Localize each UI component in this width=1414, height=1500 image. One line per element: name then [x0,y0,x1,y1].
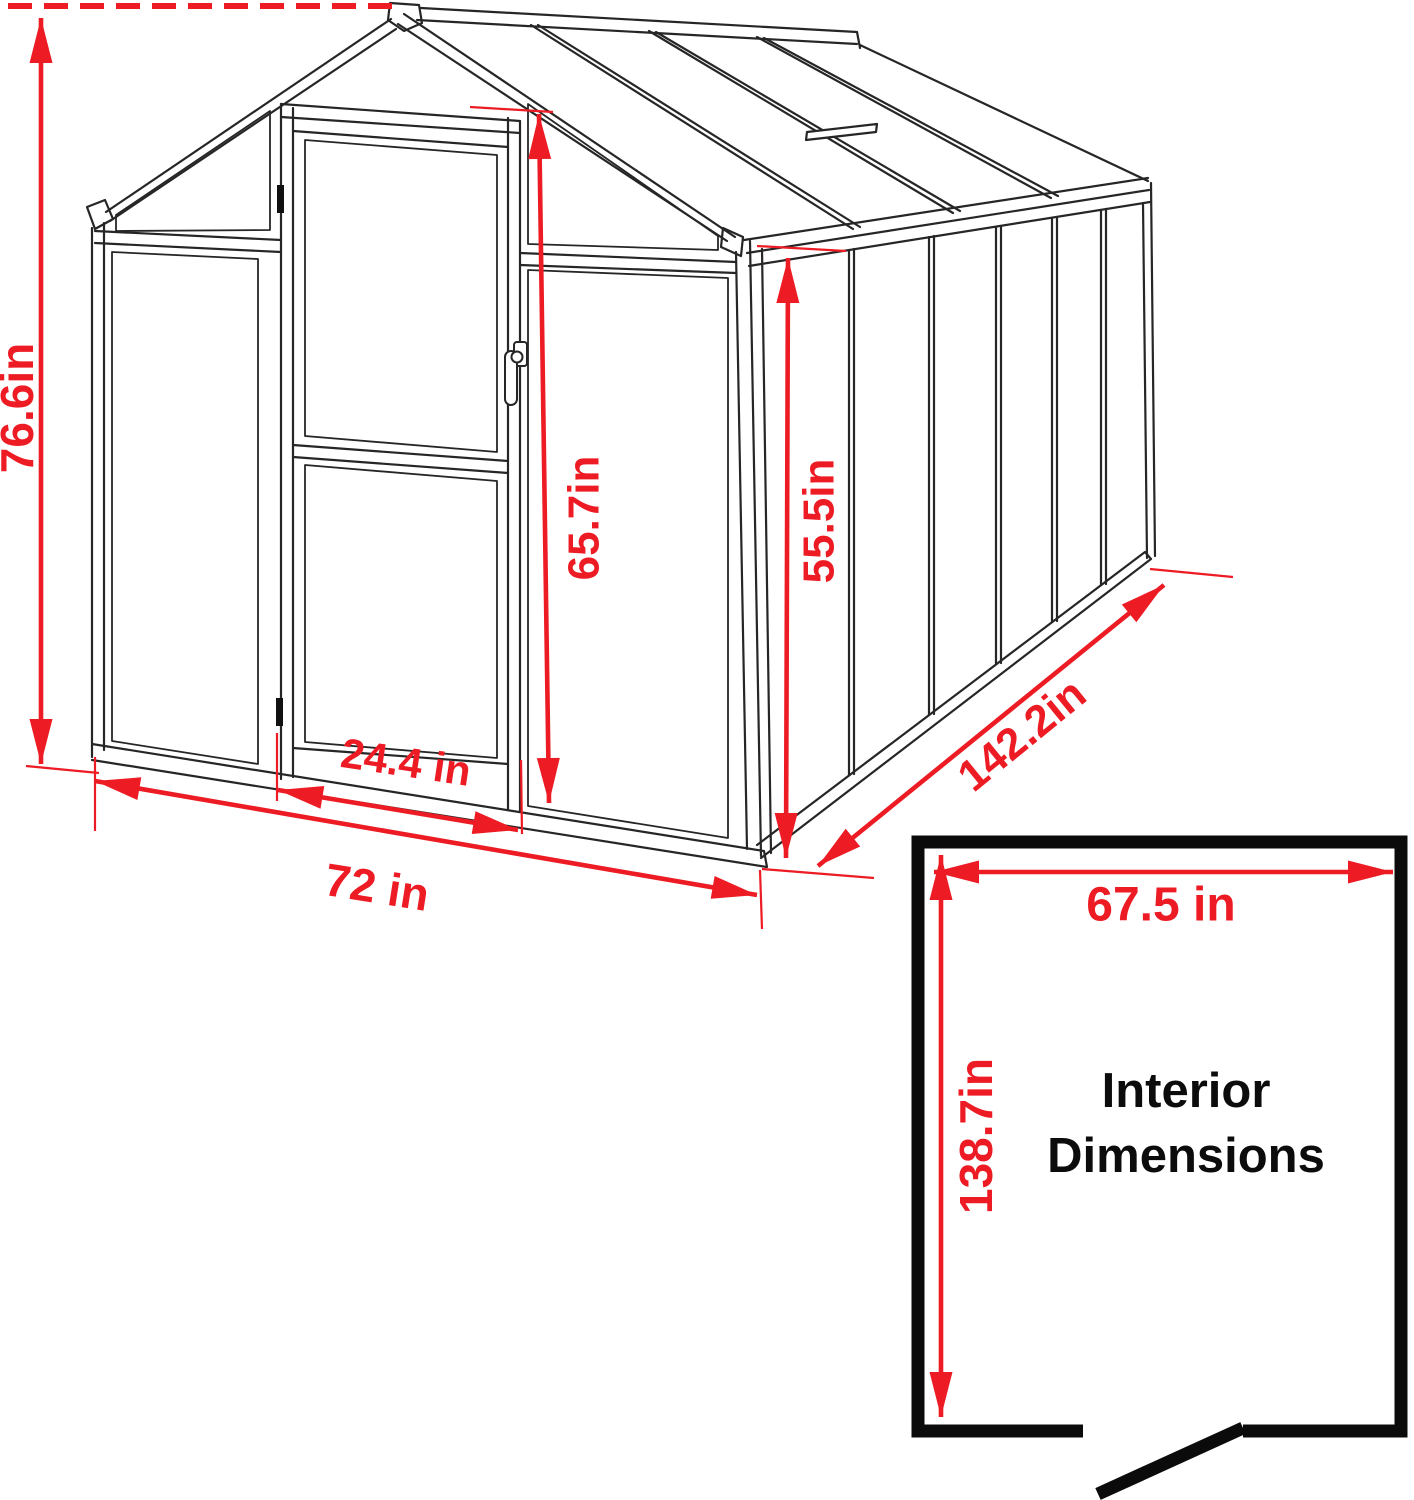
arrowhead [537,758,560,803]
arrowhead [775,813,798,858]
dimension-label-door-height: 65.7in [560,456,609,581]
arrowhead [528,114,551,159]
side-post [996,226,1001,664]
extension-line [521,760,522,834]
right-eave-cap [721,228,743,256]
dimension-side-wall-height: 55.5in [775,258,844,858]
floorplan-title-line2: Dimensions [1047,1129,1325,1183]
floorplan-door [1098,1428,1243,1494]
eave-rail-left [95,231,281,252]
dimension-depth: 142.2in [818,585,1164,866]
extension-line [760,870,762,929]
door-upper-pane [305,140,497,452]
eave-rail-right [520,253,736,273]
dimension-line [539,114,549,803]
arrowhead [776,258,799,303]
arrowhead [278,786,324,809]
dimension-label-overall-height: 76.6in [0,343,43,473]
dimension-door-height: 65.7in [528,114,608,803]
arrowhead [930,1372,953,1417]
arrowhead [711,876,757,899]
dimension-label-interior-depth: 138.7in [950,1058,1002,1214]
door-handle [505,342,527,405]
side-post [1052,217,1057,622]
side-post [849,249,854,775]
door-lower-pane [305,465,497,758]
dimension-line [786,258,788,858]
door-hardware [276,185,527,726]
dimension-interior-depth: 138.7in [930,855,1003,1417]
roof [87,3,1150,266]
apex-cap [388,3,422,31]
left-gable-edge [106,19,396,221]
arrowhead [1348,861,1393,884]
back-corner-post [1143,183,1155,558]
extension-line [762,869,874,878]
diagram-canvas: Interior Dimensions 76.6in65.7in55.5in24… [0,0,1414,1500]
arrowhead [30,719,53,764]
dimension-line [818,585,1164,866]
left-corner-post [92,223,104,757]
dimension-label-front-width: 72 in [321,853,433,921]
left-eave-cap [87,200,113,229]
dimension-annotations: 76.6in65.7in55.5in24.4 in72 in142.2in67.… [0,6,1393,1417]
side-post [929,236,934,715]
arrowhead [472,811,518,834]
side-post [1101,209,1106,585]
door [281,104,520,812]
door-hinge [276,698,283,726]
ridge-cap [417,8,860,48]
door-mid-rail [293,445,508,473]
dimension-label-side-wall-height: 55.5in [795,459,844,584]
dimension-overall-height: 76.6in [0,18,53,764]
front-left-pane [112,252,258,764]
arrowhead [930,855,953,900]
dimension-interior-width: 67.5 in [934,861,1393,932]
front-right-pane [528,270,728,838]
extension-line [1150,569,1233,577]
dimension-label-door-width: 24.4 in [338,729,474,795]
door-right-jamb [508,118,520,812]
dimension-label-interior-width: 67.5 in [1086,879,1235,932]
extension-line [470,107,553,112]
front-right-corner-post [736,241,771,856]
dimension-label-depth: 142.2in [949,669,1096,801]
floorplan-title-line1: Interior [1102,1064,1271,1118]
arrowhead [30,18,53,63]
greenhouse-diagram: Interior Dimensions 76.6in65.7in55.5in24… [0,0,1414,1500]
arrowhead [95,777,141,800]
door-hinge [277,185,284,213]
extension-line [26,766,99,773]
